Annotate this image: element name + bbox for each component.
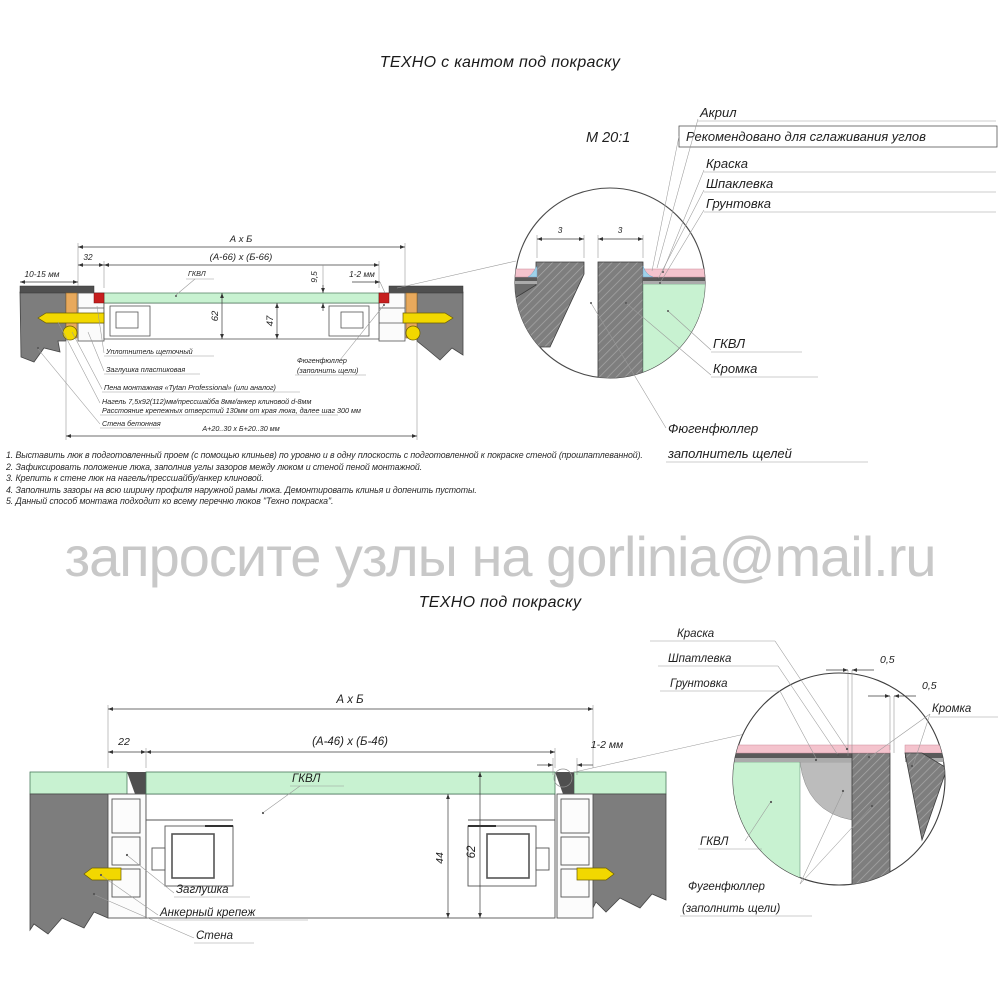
label-paint-1: Краска: [706, 156, 748, 171]
label-filler-d1b: заполнитель щелей: [667, 446, 792, 461]
dim-overall-2: А х Б: [335, 694, 364, 706]
label-filler-1a: Фюгенфюллер: [297, 356, 347, 365]
brush-seal-right: [379, 293, 389, 303]
dim-05b: 0,5: [922, 680, 937, 692]
wall-left: [20, 292, 66, 362]
label-seal: Уплотнитель щеточный: [105, 347, 193, 356]
dim-gap-right-2: 1-2 мм: [591, 739, 624, 751]
label-primer-1: Грунтовка: [706, 196, 771, 211]
dim-opening: А+20..30 х Б+20..30 мм: [201, 424, 279, 433]
label-primer-2: Грунтовка: [670, 678, 728, 690]
drawing-sheet: ТЕХНО с кантом под покраску: [0, 0, 1000, 1000]
dim-depth-47: 47: [265, 315, 276, 326]
dim-inner-2: (А-46) х (Б-46): [312, 736, 388, 748]
anchor-plug-right: [406, 326, 420, 340]
detail2-paint-left: [730, 745, 890, 753]
label-edge-2: Кромка: [932, 703, 971, 715]
detail2-gkvl: [730, 762, 800, 888]
label-paint-2: Краска: [677, 628, 714, 640]
detail1-view: 3 3 М 20:1 Акрил Рекомендовано для сглаж…: [512, 105, 997, 462]
label-wall-2: Стена: [196, 930, 233, 942]
detail2-door-edge: [852, 753, 890, 888]
detail2-view: 0,5 0,5 Краска Шпатлевка Грунтовка Кромк…: [650, 628, 998, 916]
note-1: 1. Выставить люк в подготовленный проем …: [6, 450, 666, 462]
label-gkvl-d1: ГКВЛ: [713, 336, 745, 351]
brush-seal-left: [94, 293, 104, 303]
label-edge-d1: Кромка: [713, 361, 757, 376]
anchor-left: [38, 313, 104, 323]
label-filler-d1a: Фюгенфюллер: [668, 421, 758, 436]
wall-right: [417, 292, 463, 360]
label-wall-concrete: Стена бетонная: [102, 419, 161, 428]
dim-05a: 0,5: [880, 654, 895, 666]
detail1-scale: М 20:1: [586, 130, 630, 146]
door-gkvl-panel: [104, 293, 379, 303]
dim-gap-left: 10-15 мм: [25, 269, 60, 279]
dim-3b: 3: [618, 225, 623, 235]
installation-notes: 1. Выставить люк в подготовленный проем …: [6, 450, 666, 508]
detail1-connector: [397, 261, 516, 288]
finish-layer-left: [20, 286, 94, 293]
label-anchor-2: Анкерный крепеж: [159, 907, 256, 919]
anchor-left-2: [84, 868, 121, 880]
dim-overall-1: А х Б: [229, 234, 253, 245]
label-foam: Пена монтажная «Tytan Professional» (или…: [104, 383, 276, 392]
drawing2-title: ТЕХНО под покраску: [0, 594, 1000, 612]
label-filler-d2b: (заполнить щели): [682, 903, 780, 915]
edge-gap-left: [127, 772, 146, 794]
drawing1-section: А х Б (А-66) х (Б-66) 32 10-15 мм 1-2 мм…: [20, 234, 516, 440]
dim-depth-62: 62: [210, 310, 221, 321]
door-gkvl-2: [146, 772, 555, 794]
dim-depth-62-2: 62: [466, 845, 478, 858]
label-putty-1: Шпаклевка: [706, 176, 773, 191]
dim-offset-22: 22: [117, 736, 130, 748]
edge-gap-right: [555, 772, 574, 794]
note-2: 2. Зафиксировать положение люка, заполни…: [6, 462, 666, 474]
dim-gap-right-1: 1-2 мм: [349, 269, 375, 279]
anchor-right-2: [577, 868, 614, 880]
wall-gkvl-left: [30, 772, 127, 794]
watermark-email: запросите узлы на gorlinia@mail.ru: [0, 524, 1000, 589]
anchor-right: [403, 313, 453, 323]
detail1-frame-profile: [598, 262, 643, 382]
note-4: 4. Заполнить зазоры на всю ширину профил…: [6, 485, 666, 497]
label-dowel-1: Нагель 7,5х92(112)мм/прессшайба 8мм/анке…: [102, 397, 311, 406]
label-dowel-2: Расстояние крепежных отверстий 130мм от …: [102, 406, 361, 415]
wall-right-2: [593, 794, 666, 912]
dim-panel-thk: 9,5: [309, 271, 319, 283]
label-recommend: Рекомендовано для сглаживания углов: [686, 129, 926, 144]
label-gkvl-1: ГКВЛ: [188, 269, 206, 278]
label-plug-1: Заглушка пластиковая: [106, 365, 185, 374]
label-gkvl-d2: ГКВЛ: [700, 836, 728, 848]
dim-3a: 3: [558, 225, 563, 235]
label-filler-1b: (заполнить щели): [297, 366, 358, 375]
dim-inner-1: (А-66) х (Б-66): [210, 252, 273, 263]
label-filler-d2a: Фугенфюллер: [688, 881, 766, 893]
dim-depth-44: 44: [434, 852, 446, 864]
drawing2-section: А х Б (А-46) х (Б-46) 22 1-2 мм 44 62 ГК…: [30, 694, 745, 943]
note-3: 3. Крепить к стене люк на нагель/прессша…: [6, 473, 666, 485]
label-plug-2: Заглушка: [176, 884, 228, 896]
label-putty-2: Шпатлевка: [668, 653, 731, 665]
detail1-paint-right: [643, 269, 713, 277]
label-acrylic: Акрил: [699, 105, 737, 120]
label-gkvl-2: ГКВЛ: [292, 773, 320, 785]
dim-offset-32: 32: [83, 252, 93, 262]
wall-gkvl-right: [574, 772, 666, 794]
note-5: 5. Данный способ монтажа подходит ко все…: [6, 496, 666, 508]
wall-left-2: [30, 794, 108, 934]
detail1-content: [512, 262, 715, 383]
